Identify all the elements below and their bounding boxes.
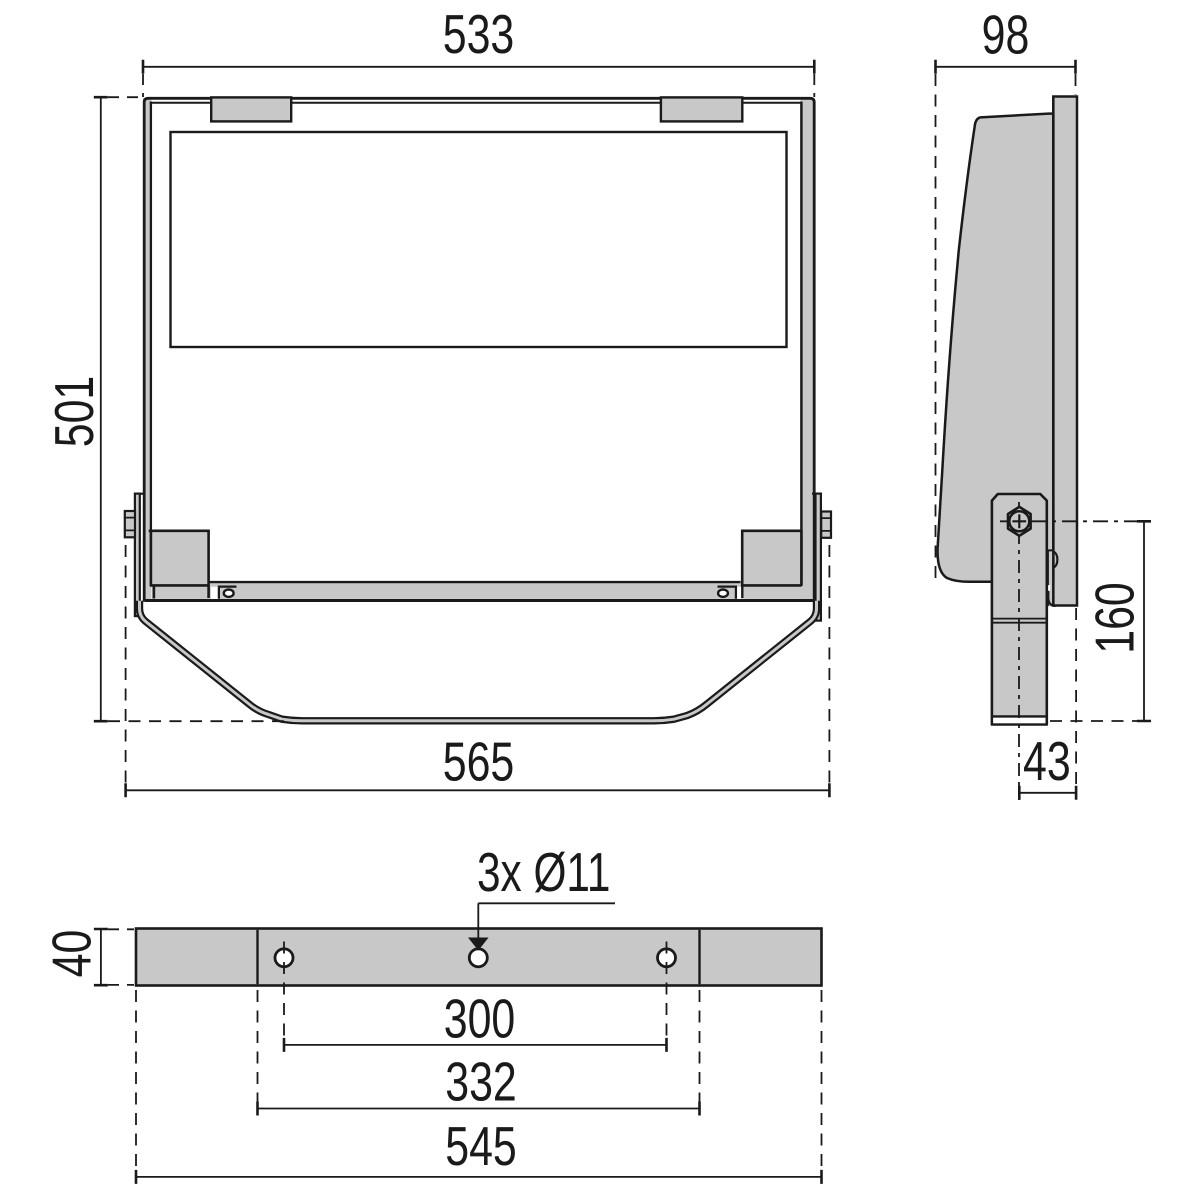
svg-text:40: 40 bbox=[41, 930, 103, 978]
svg-text:501: 501 bbox=[43, 376, 105, 448]
svg-text:533: 533 bbox=[443, 3, 515, 65]
svg-text:160: 160 bbox=[1084, 582, 1146, 654]
svg-text:43: 43 bbox=[1023, 730, 1071, 792]
svg-text:545: 545 bbox=[445, 1115, 517, 1177]
svg-text:300: 300 bbox=[444, 988, 516, 1050]
svg-text:565: 565 bbox=[443, 731, 515, 793]
svg-text:332: 332 bbox=[445, 1051, 517, 1113]
svg-text:3x Ø11: 3x Ø11 bbox=[477, 841, 610, 903]
svg-text:98: 98 bbox=[982, 4, 1030, 66]
